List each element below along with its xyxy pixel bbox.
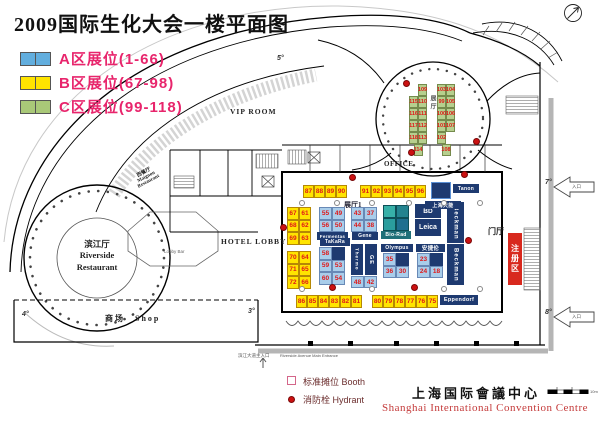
hydrant-dot <box>403 80 410 87</box>
booth-cell: 80 <box>372 295 383 308</box>
column <box>334 200 340 206</box>
booth-cell: 59 <box>319 260 332 273</box>
main-entrance-label-cn: 滨江大道主入口 <box>238 353 270 359</box>
column <box>477 286 483 292</box>
booth-cell: 110 <box>418 96 427 108</box>
marker-5: 5° <box>277 55 284 62</box>
booth-block-55-50: 55495650 <box>319 207 345 232</box>
marker-7: 7° <box>545 179 552 186</box>
shop-label: 商场 Shop <box>105 313 160 324</box>
foyer-label: 门厅 <box>488 226 504 237</box>
booth-cell: 18 <box>430 266 443 279</box>
booth-block-58-54: 5859536054 <box>319 247 345 285</box>
riverside-label-cn: 滨江厅 <box>62 238 132 250</box>
booth-cell: 91 <box>360 185 371 198</box>
booth-cell: 50 <box>332 220 345 233</box>
exhibitor-biorad: Bio-Rad <box>381 231 411 239</box>
booth-cell: 63 <box>299 232 311 245</box>
exhibitor-agilent: 安捷伦 <box>416 244 445 252</box>
booth-cell: 23 <box>417 253 430 266</box>
entrance-arrows <box>554 177 594 327</box>
booth-cell: 43 <box>351 207 364 220</box>
booth-cell: 56 <box>319 220 332 233</box>
zone-c-label: C区展位(99-118) <box>59 96 183 117</box>
exhibitor-gene: Gene <box>352 232 378 240</box>
booth-cell: 113 <box>418 132 427 144</box>
booth-row-86-81: 868584838281 <box>296 295 362 308</box>
booth-cell: 55 <box>319 207 332 220</box>
stairs <box>506 96 538 114</box>
booth-cell: 81 <box>351 295 362 308</box>
booth-block-70-66: 706471657266 <box>287 251 311 289</box>
booth-cell: 82 <box>340 295 351 308</box>
booth-cell: 112 <box>418 120 427 132</box>
booth-cell: 103 <box>437 84 446 96</box>
floor-plan: 2009国际生化大会一楼平面图 A区展位(1-66) B区展位(67-98) C… <box>0 0 600 424</box>
column <box>299 200 305 206</box>
column <box>406 200 412 206</box>
booth-cell: 68 <box>287 220 299 233</box>
booth-row-91-96: 919293949596 <box>360 185 426 198</box>
booth-cell: 111 <box>418 108 427 120</box>
main-entrance-arrow <box>260 358 266 368</box>
vip-room-label: VIP ROOM <box>230 107 277 116</box>
exhibitor-thermo: Thermo <box>351 244 363 275</box>
booth-cell: 83 <box>329 295 340 308</box>
hydrant-dot <box>473 138 480 145</box>
booth-cell: 92 <box>371 185 382 198</box>
booth-block-35-30: 353630 <box>383 253 409 278</box>
northeast-stairs <box>482 22 562 61</box>
biorad-booth <box>383 205 409 231</box>
hydrant-legend-label: 消防栓 Hydrant <box>303 393 364 406</box>
booth-cell: 100 <box>437 108 446 120</box>
booth-block-c-right: 10310499105100106101107102108 <box>437 84 455 156</box>
stairs <box>174 176 194 188</box>
booth-cell: 89 <box>325 185 336 198</box>
column <box>477 200 483 206</box>
booth-cell: 78 <box>394 295 405 308</box>
exhibitor-tanon: Tanon <box>453 184 479 193</box>
booth-cell: 72 <box>287 276 299 289</box>
zone-b-swatch <box>20 76 51 90</box>
column <box>369 286 375 292</box>
booth-cell: 117 <box>409 120 418 132</box>
canopy-wave <box>286 321 502 326</box>
page-title: 2009国际生化大会一楼平面图 <box>14 8 289 37</box>
booth-legend-icon <box>287 376 296 385</box>
booth-cell: 62 <box>299 220 311 233</box>
escalator <box>524 228 540 290</box>
venue-name-cn: 上海国际會議中心 <box>412 383 540 402</box>
side-entrance-label-top: 入口 <box>572 184 581 190</box>
booth-cell: 37 <box>364 207 377 220</box>
booth-cell: 99 <box>437 96 446 108</box>
booth-cell: 49 <box>332 207 345 220</box>
booth-cell: 61 <box>299 207 311 220</box>
booth-cell: 65 <box>299 264 311 277</box>
booth-cell: 109 <box>418 84 427 96</box>
zone-c-swatch <box>20 100 51 114</box>
riverside-label-en2: Restaurant <box>62 262 132 272</box>
hydrant-dot <box>408 149 415 156</box>
booth-cell: 79 <box>383 295 394 308</box>
marker-8: 8° <box>545 309 552 316</box>
hydrant-legend-icon <box>288 396 295 403</box>
booth-cell: 84 <box>318 295 329 308</box>
exhibitor-ge: GE <box>365 244 377 275</box>
riverside-label-en1: Riverside <box>62 250 132 260</box>
booth-row-87-90: 87888990 <box>303 185 347 198</box>
legend-row-b: B区展位(67-98) <box>20 72 174 93</box>
booth-cell: 24 <box>417 266 430 279</box>
booth-cell: 77 <box>405 295 416 308</box>
exhibitor-leica: Leica <box>415 219 441 236</box>
booth-cell: 106 <box>446 108 455 120</box>
hydrant-dot <box>329 284 336 291</box>
exhibitor-takara: TaKaRa <box>320 238 350 246</box>
lobby-lounge <box>128 212 218 266</box>
booth-cell: 36 <box>383 266 396 279</box>
exhibitor-olympus: Olympus <box>381 244 413 252</box>
booth-cell: 76 <box>416 295 427 308</box>
booth-cell: 48 <box>351 276 364 288</box>
hotel-lobby-label: HOTEL LOBBY <box>221 237 286 246</box>
zone-a-label: A区展位(1-66) <box>59 48 165 69</box>
booth-cell: 116 <box>409 108 418 120</box>
booth-cell: 88 <box>314 185 325 198</box>
venue-name-en: Shanghai International Convention Centre <box>382 402 588 414</box>
booth-cell: 85 <box>307 295 318 308</box>
booth-cell: 70 <box>287 251 299 264</box>
booth-row-80-75: 807978777675 <box>372 295 438 308</box>
booth-cell: 58 <box>319 247 332 260</box>
booth-cell: 95 <box>404 185 415 198</box>
booth-cell: 96 <box>415 185 426 198</box>
booth-cell: 71 <box>287 264 299 277</box>
zone-a-swatch <box>20 52 51 66</box>
stairs <box>256 154 278 168</box>
booth-cell: 44 <box>351 220 364 233</box>
booth-block-23-18: 232418 <box>417 253 443 278</box>
booth-cell: 114 <box>414 144 423 156</box>
hydrant-dot <box>349 174 356 181</box>
tanon-booth <box>431 182 451 199</box>
rotunda-wall <box>376 62 490 176</box>
booth-cell: 101 <box>437 120 446 132</box>
booth-cell: 64 <box>299 251 311 264</box>
booth-cell: 94 <box>393 185 404 198</box>
column <box>441 200 447 206</box>
booth-cell: 107 <box>446 120 455 132</box>
booth-cell: 104 <box>446 84 455 96</box>
booth-block-c-left: 109115110116111117112118113114 <box>409 84 427 156</box>
booth-cell: 38 <box>364 220 377 233</box>
booth-block-67-63: 676168626963 <box>287 207 311 245</box>
exhibitor-eppendorf: Eppendorf <box>440 295 478 305</box>
rotunda-columns <box>383 69 483 169</box>
exhibitor-beckman-bottom: Beckman <box>447 244 464 285</box>
booth-cell: 108 <box>442 144 451 156</box>
booth-cell: 75 <box>427 295 438 308</box>
column <box>441 286 447 292</box>
legend-row-a: A区展位(1-66) <box>20 48 165 69</box>
booth-cell <box>430 253 443 266</box>
scale-bar <box>548 387 588 394</box>
booth-cell: 35 <box>383 253 396 266</box>
booth-cell: 67 <box>287 207 299 220</box>
booth-cell: 90 <box>336 185 347 198</box>
booth-cell: 30 <box>396 266 409 279</box>
column <box>299 286 305 292</box>
booth-cell: 102 <box>437 132 446 144</box>
booth-cell: 115 <box>409 96 418 108</box>
marker-4: 4° <box>22 311 29 318</box>
lobby-bar-label: Lobby Bar <box>164 249 185 254</box>
hydrant-dot <box>411 284 418 291</box>
booth-cell: 118 <box>409 132 418 144</box>
marker-3: 3° <box>248 308 255 315</box>
office-label: OFFICE <box>384 160 413 168</box>
booth-cell: 93 <box>382 185 393 198</box>
compass-icon <box>565 5 582 22</box>
registration-area: 注册区 <box>508 233 522 285</box>
booth-cell: 105 <box>446 96 455 108</box>
booth-cell: 60 <box>319 272 332 285</box>
legend-row-c: C区展位(99-118) <box>20 96 183 117</box>
booth-cell <box>396 253 409 266</box>
booth-legend-label: 标准摊位 Booth <box>303 375 365 388</box>
side-entrance-label-bottom: 入口 <box>572 314 581 320</box>
booth-cell: 54 <box>332 272 345 285</box>
hydrant-dot <box>461 171 468 178</box>
booth-cell: 53 <box>332 260 345 273</box>
stairs <box>288 150 306 164</box>
scale-label: 10m <box>590 389 598 394</box>
column <box>369 200 375 206</box>
booth-cell <box>332 247 345 260</box>
booth-cell: 86 <box>296 295 307 308</box>
booth-cell: 69 <box>287 232 299 245</box>
booth-block-43-38: 43374438 <box>351 207 377 232</box>
zone-b-label: B区展位(67-98) <box>59 72 174 93</box>
rotunda-hall-label: 展厅 <box>428 95 437 111</box>
booth-cell: 87 <box>303 185 314 198</box>
hydrant-dot <box>465 237 472 244</box>
main-entrance-label-en: Riverside Avenue Main Entrance <box>280 353 338 358</box>
hydrant-dot <box>280 224 287 231</box>
